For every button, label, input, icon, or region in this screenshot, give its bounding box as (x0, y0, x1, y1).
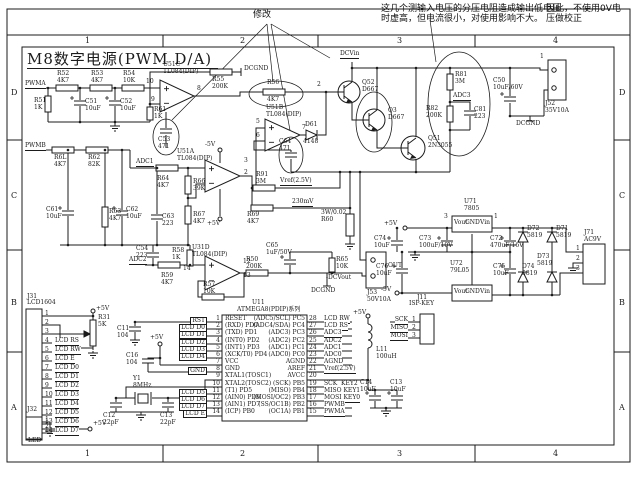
junction-dot (551, 294, 554, 297)
lcd-pin-number: 3 (45, 329, 49, 336)
resistor-body (185, 176, 191, 194)
capacitor-symbol (129, 327, 141, 331)
ground-symbol (88, 351, 98, 358)
junction-dot (325, 91, 328, 94)
net-label-1: 1 (494, 214, 498, 221)
isp-pin-number: 3 (412, 333, 416, 340)
component-label-Q51: Q512N3055 (428, 136, 452, 149)
component-label-C74: C7410uF (374, 236, 390, 249)
junction-dot (376, 67, 379, 70)
net-label-PWMA: PWMA (25, 81, 46, 89)
junction-dot (152, 264, 155, 267)
junction-dot (359, 171, 362, 174)
ground-symbol (136, 413, 146, 420)
junction-dot (401, 251, 404, 254)
isp-pin-number: 1 (412, 317, 416, 324)
component-label-C75: C7510uF (493, 264, 509, 277)
junction-dot (385, 407, 388, 410)
component-label-C14: C1410uF (360, 380, 376, 393)
revision-annotation: 修改 (253, 11, 271, 21)
resistor-body (90, 85, 112, 91)
mcu-pin-function-left: (TXD) PD1 (225, 330, 257, 337)
component-label-R51: R511K (34, 98, 46, 111)
frame-col-bottom-1: 1 (85, 449, 90, 459)
net-label-ADC3: ADC3 (453, 93, 471, 101)
lcd-pin-number: 11 (45, 401, 53, 408)
component-label-Q3: Q3D667 (388, 108, 404, 121)
lcd-pin-net: LCD D3 (55, 392, 79, 400)
net-label-1: 1 (576, 246, 580, 253)
component-label-R62: R6282K (88, 155, 100, 168)
junction-dot (187, 197, 190, 200)
capacitor-symbol (391, 241, 403, 245)
component-label-L11: L11100uH (376, 347, 397, 360)
junction-dot (121, 244, 124, 247)
note-right-line2: 压做校正 (546, 15, 582, 25)
net-label-2: 2 (244, 170, 248, 177)
resistor-body (447, 74, 453, 90)
connector-pin (371, 258, 375, 262)
net-label-Vref25V: Vref(2.5V) (280, 178, 312, 186)
component-label-C63: C63223 (162, 214, 174, 227)
net-label-PWMB: PWMB (25, 143, 46, 151)
frame-row-left-D: D (11, 88, 17, 98)
frame-col-top-2: 2 (240, 36, 245, 46)
junction-dot (509, 67, 512, 70)
junction-dot (289, 272, 292, 275)
component-label-C61: C6110uF (46, 207, 62, 220)
resistor-body (158, 262, 180, 268)
junction-dot (449, 129, 452, 132)
capacitor-symbol (142, 359, 154, 363)
component-label-C53: C53471 (158, 137, 170, 150)
net-label-OUT: OUT (388, 263, 402, 270)
capacitor-symbol (160, 129, 172, 133)
ground-symbol (345, 242, 355, 249)
net-label-8: 8 (197, 86, 201, 93)
component-label-3W/0.02: 3W/0.02R60 (321, 210, 346, 223)
junction-dot (349, 171, 352, 174)
capacitor-symbol (504, 97, 516, 101)
resistor-body (253, 185, 275, 191)
net-label-+5V: +5V (96, 306, 109, 313)
resistor-body (90, 320, 96, 346)
component-label-U51A: U51ATL084(DIP) (177, 149, 212, 162)
capacitor-plus (70, 96, 74, 100)
frame-col-top-4: 4 (553, 36, 558, 46)
junction-dot (92, 315, 95, 318)
component-label-C81: C81223 (474, 107, 486, 120)
pot-wiper-arrow (84, 331, 90, 337)
capacitor-symbol (369, 396, 381, 400)
junction-dot (115, 397, 118, 400)
lcd-pin-number: 4 (45, 338, 49, 345)
component-label-D71: D715819 (556, 226, 571, 239)
net-label-Vin: Vin (480, 220, 490, 227)
isp-pin-number: 2 (412, 325, 416, 332)
net-label-+5V: +5V (93, 421, 106, 428)
junction-dot (67, 244, 70, 247)
inductor-symbol (368, 324, 372, 348)
net-label-DCVin: DCVin (340, 51, 359, 59)
component-label-U72: U7279L05 (450, 261, 469, 274)
component-label-R63: R634K7 (109, 209, 121, 222)
isp-pin-net: MOSI (390, 333, 408, 341)
net-label-9: 9 (151, 97, 155, 104)
component-label-R81: R813M (455, 72, 467, 85)
net-label-ADC2: ADC2 (129, 257, 147, 265)
capacitor-symbol (396, 269, 408, 273)
junction-dot (509, 251, 512, 254)
junction-dot (551, 227, 554, 230)
frame-col-bottom-3: 3 (397, 449, 402, 459)
lcd-pin-net: LCD D1 (55, 374, 79, 382)
net-label-5: 5 (256, 119, 260, 126)
net-label--DCVout: -DCVout (326, 275, 351, 282)
capacitor-plus (105, 96, 109, 100)
junction-dot (446, 227, 449, 230)
junction-dot (104, 244, 107, 247)
capacitor-symbol (284, 260, 296, 264)
component-label-C50: C5010uF/60V (493, 78, 523, 91)
component-label-R55: R55200K (212, 77, 228, 90)
capacitor-symbol (391, 396, 403, 400)
capacitor-plus (500, 92, 504, 96)
resistor-body (329, 258, 335, 272)
power-pad (403, 226, 407, 230)
net-label-+5V: +5V (150, 335, 163, 342)
junction-dot (134, 321, 137, 324)
component-label-R54: R5410K (123, 71, 135, 84)
junction-dot (156, 167, 159, 170)
component-label-R6L: R6L4K7 (54, 155, 66, 168)
component-label-R91: R913M (256, 172, 268, 185)
junction-dot (104, 149, 107, 152)
lcd-pin-net: LCD D4 (55, 401, 79, 409)
net-label-6: 6 (256, 133, 260, 140)
mcu-pin-function-right: (OC1A) PB1 (268, 409, 305, 416)
net-label-GND: GND (465, 289, 480, 296)
lcd-pin-net: LCD D6 (55, 419, 79, 427)
junction-dot (349, 207, 352, 210)
lcd-pin-number: 5 (45, 347, 49, 354)
capacitor-symbol (110, 403, 122, 407)
lcd-pin-number: 10 (45, 392, 53, 399)
resistor-body (122, 85, 144, 91)
component-label-C13: C1322pF (160, 413, 176, 426)
note-line2: 时虚高，但电流很小，对使用影响不大。 (381, 15, 543, 25)
connector-pin (371, 274, 375, 278)
ground-symbol (130, 338, 140, 345)
mcu-wire-label-left: LCD D4 (179, 353, 207, 361)
net-label-DCGND: DCGND (516, 121, 540, 128)
lcd-connector-part: LCD1604 (27, 300, 56, 307)
net-label-14: 14 (183, 266, 191, 273)
junction-dot (449, 101, 452, 104)
lcd-pin-number: 8 (45, 374, 49, 381)
mcu-pin-number-right: 15 (309, 409, 317, 416)
net-label-Vin: Vin (480, 289, 490, 296)
mcu-pin-number-right: 26 (309, 330, 317, 337)
component-label-Y1: Y18MHz (133, 376, 151, 389)
component-label-R65: R6510K (336, 257, 348, 270)
junction-dot (509, 227, 512, 230)
net-label-3: 3 (244, 158, 248, 165)
isp-connector-part: ISP-KEY (409, 301, 434, 308)
ground-symbol (110, 124, 120, 131)
mcu-pin-function-left: XTAL1(TOSC1) (225, 373, 271, 380)
diode-symbol (547, 272, 557, 282)
schematic-page: M8数字电源(PWM D/A) 修改 这几个测输入电压的分压电阻造成输出低电压 … (0, 0, 640, 495)
mcu-wire-label-left: LCD E (183, 410, 207, 418)
net-label-+5V: +5V (353, 310, 366, 317)
lcd-pin-net: LCD D5 (55, 410, 79, 418)
led-connector-ref: J32 (27, 407, 37, 414)
mcu-pin-function-left: (ICP) PB0 (225, 409, 255, 416)
lcd-pin-number: 1 (45, 311, 49, 318)
component-label-R53: R534K7 (91, 71, 103, 84)
net-label-DCGND: DCGND (311, 288, 335, 295)
frame-row-right-B: B (619, 298, 625, 308)
component-label-U51C: U51CTL084(DIP) (163, 62, 198, 75)
component-label-C11: C11104 (117, 326, 129, 339)
junction-dot (522, 294, 525, 297)
net-label-+5V: +5V (384, 221, 397, 228)
capacitor-symbol (147, 253, 159, 257)
frame-row-right-C: C (619, 191, 625, 201)
junction-dot (522, 227, 525, 230)
component-label-C72: C72470uF/16V (490, 236, 523, 249)
component-label-C64: C64471 (279, 139, 291, 152)
frame-col-bottom-4: 4 (553, 449, 558, 459)
junction-dot (414, 251, 417, 254)
component-label-J71: J71AC9V (584, 230, 601, 243)
component-label-J52: J5235V10A (545, 101, 569, 114)
net-label-4148: 4148 (303, 139, 318, 146)
frame-col-top-3: 3 (397, 36, 402, 46)
frame-row-right-D: D (619, 88, 625, 98)
lcd-pin-net: LCD D0 (55, 365, 79, 373)
junction-dot (79, 87, 82, 90)
mcu-pin-function-right: AVCC (287, 373, 305, 380)
mcu-wire-label-right: PWMA (324, 409, 345, 417)
net-label-2: 2 (317, 82, 321, 89)
lcd-pin-number: 2 (45, 320, 49, 327)
net-label-13: 13 (243, 273, 251, 280)
resistor-body (185, 206, 191, 224)
junction-dot (401, 292, 404, 295)
component-label-R52: R524K7 (57, 71, 69, 84)
revision-ellipse (356, 92, 392, 152)
resistor-body (156, 165, 178, 171)
frame-row-right-A: A (619, 403, 625, 413)
net-label-+5V: +5V (207, 221, 220, 228)
lcd-pin-net: LCD D2 (55, 383, 79, 391)
lcd-pin-number: 7 (45, 365, 49, 372)
component-label-C65: C651uF/50V (266, 243, 292, 256)
capacitor-symbol (62, 211, 74, 215)
component-label-R31: R315K (98, 315, 110, 328)
junction-dot (67, 149, 70, 152)
component-label-R64: R644K7 (157, 176, 169, 189)
frame-row-left-A: A (11, 403, 17, 413)
net-label-3: 3 (444, 214, 448, 221)
net-label-1: 1 (540, 54, 544, 61)
resistor-body (346, 214, 354, 236)
connector-pin (552, 68, 556, 72)
component-label-C62: C6210uF (126, 207, 142, 220)
frame-col-bottom-2: 2 (240, 449, 245, 459)
resistor-body (52, 147, 74, 153)
power-pad (88, 427, 92, 431)
component-label-Q52: Q52D667 (362, 80, 378, 93)
component-label-R67: R674K7 (193, 212, 205, 225)
component-label-R61: R611K (154, 107, 166, 120)
net-label-3: 3 (576, 266, 580, 273)
net-label-D61: D61 (305, 122, 317, 129)
junction-dot (251, 187, 254, 190)
net-label-12: 12 (243, 259, 251, 266)
component-label-U51B: U51BTL084(DIP) (266, 105, 301, 118)
junction-dot (167, 397, 170, 400)
power-pad (91, 309, 95, 313)
mcu-pin-number-left: 9 (216, 373, 220, 380)
lcd-pin-net: LCD RS (55, 338, 79, 346)
junction-dot (415, 171, 418, 174)
junction-dot (156, 244, 159, 247)
net-label-ADC1: ADC1 (136, 159, 154, 167)
component-label-R58: R581K (172, 248, 184, 261)
junction-dot (159, 357, 162, 360)
junction-dot (187, 244, 190, 247)
resistor-body (56, 85, 78, 91)
component-label-U71: U717805 (464, 199, 479, 212)
lcd-pin-net: LCD D7 (55, 428, 79, 436)
lcd-pin-net: LCD RW (55, 347, 81, 355)
resistor-body (102, 207, 108, 227)
frame-row-left-C: C (11, 191, 17, 201)
opamp-symbol (205, 160, 240, 192)
junction-dot (351, 67, 354, 70)
net-label-10: 10 (146, 79, 154, 86)
frame-col-top-1: 1 (85, 36, 90, 46)
power-pad (366, 314, 370, 318)
mcu-pin-number-right: 20 (309, 373, 317, 380)
power-pad (395, 291, 399, 295)
junction-dot (449, 67, 452, 70)
power-pad (218, 148, 222, 152)
mcu-wire-label-left: GND (188, 367, 207, 375)
component-label-R59: R594K7 (161, 273, 173, 286)
resistor-body (147, 107, 153, 120)
junction-dot (509, 115, 512, 118)
junction-dot (114, 121, 117, 124)
frame-row-left-B: B (11, 298, 17, 308)
component-label-R57: R5710K (203, 282, 215, 295)
net-label-GND: GND (465, 220, 480, 227)
connector-pin (552, 86, 556, 90)
net-label--5V: -5V (205, 142, 215, 149)
capacitor-symbol (285, 153, 297, 157)
component-label-R69: R694K7 (247, 212, 259, 225)
lcd-pin-number: 6 (45, 356, 49, 363)
component-label-D72: D725819 (527, 226, 542, 239)
net-label--5V: -5V (381, 287, 391, 294)
component-label-C51: C5110uF (85, 99, 101, 112)
ground-symbol (410, 253, 420, 260)
resistor-body (447, 106, 453, 122)
frame-inner (22, 47, 614, 445)
junction-dot (415, 67, 418, 70)
junction-dot (79, 121, 82, 124)
mcu-part: ATMEGA8(PDIP)系列 (237, 307, 300, 314)
mcu-pin-number-left: 14 (212, 409, 220, 416)
mcu-wire-label-left: LCD D1 (179, 331, 207, 339)
lcd-pin-net: LCD E (55, 356, 75, 364)
junction-dot (339, 171, 342, 174)
resistor-body (210, 69, 232, 75)
mcu-pin-number-left: 3 (216, 330, 220, 337)
component-label-C73: C73100uF/10V (419, 236, 452, 249)
component-label-C13: C1310uF (390, 380, 406, 393)
component-label-C16: C16104 (126, 353, 138, 366)
power-pad (158, 342, 162, 346)
component-label-R66: R6639K (193, 179, 205, 192)
junction-dot (114, 87, 117, 90)
led-connector-tag: LED (28, 438, 41, 445)
component-label-C52: C5210uF (120, 99, 136, 112)
resistor-body (263, 89, 285, 95)
mcu-wire-label-right: Vref(2.5V) (324, 366, 356, 374)
component-label-U31D: U31DTL084(DIP) (192, 245, 227, 258)
lcd-pin-number: 9 (45, 383, 49, 390)
net-label-230mV: 230mV (292, 199, 313, 207)
junction-dot (47, 87, 50, 90)
ground-symbol (381, 409, 391, 416)
junction-dot (471, 251, 474, 254)
component-label-R82: R82200K (426, 106, 442, 119)
component-label-D73: D735819 (537, 254, 552, 267)
junction-dot (509, 294, 512, 297)
component-label-D74: D745819 (522, 264, 537, 277)
junction-dot (121, 149, 124, 152)
net-label-4K7: 4K7 (267, 97, 279, 104)
net-label-R56: R56 (267, 80, 279, 87)
mcu-pin-function-right: (ADC3) PC3 (268, 330, 305, 337)
net-label-2: 2 (576, 256, 580, 263)
net-label-DCGND: DCGND (244, 66, 268, 73)
junction-dot (187, 167, 190, 170)
led-pin-number: 2 (45, 424, 49, 431)
capacitor-symbol (162, 403, 174, 407)
